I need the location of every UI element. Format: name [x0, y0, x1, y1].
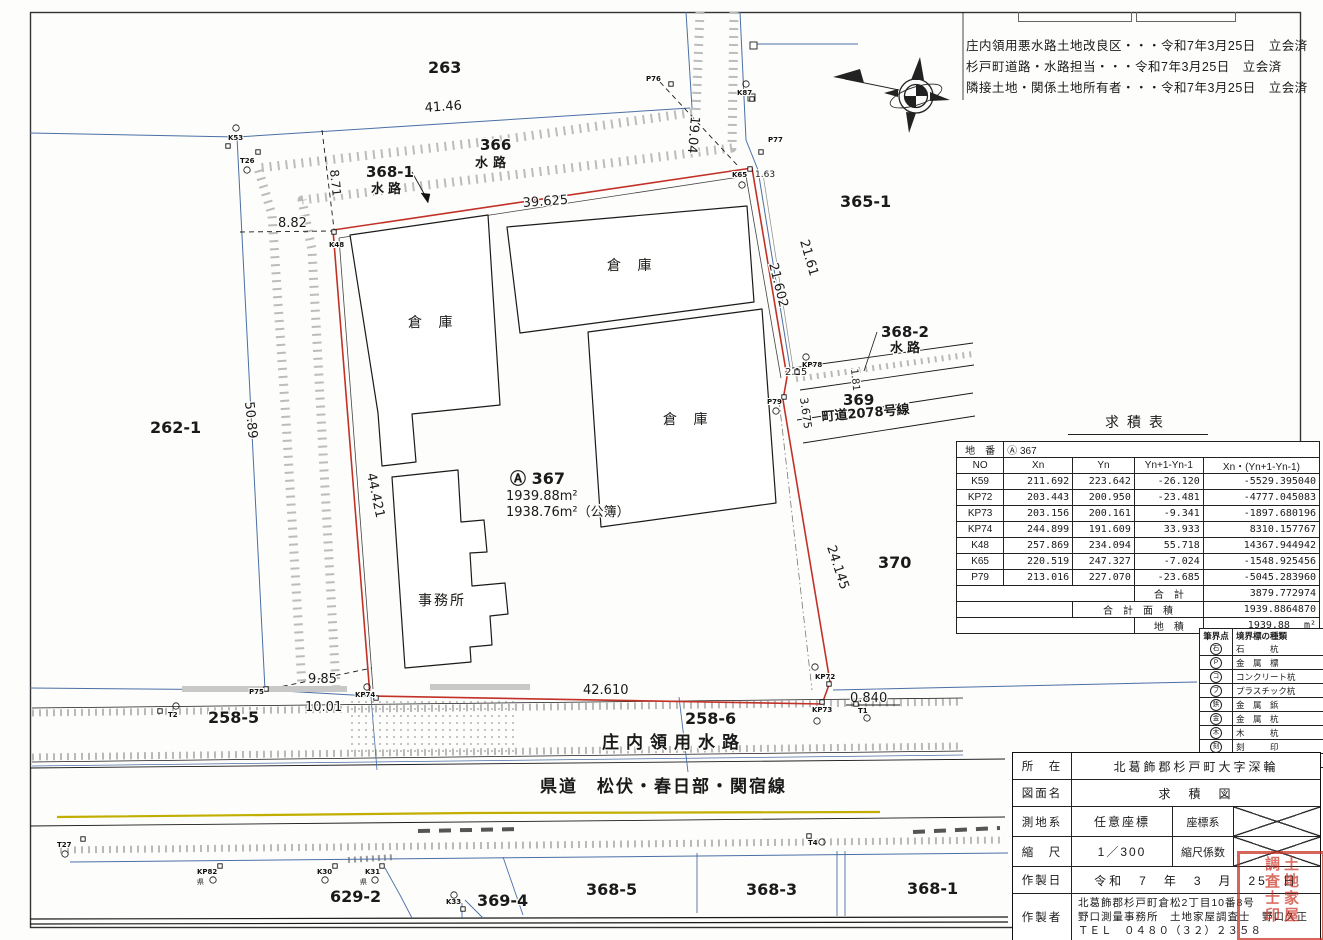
- survey-point-label: KP74: [355, 691, 375, 699]
- pavement-mark: [430, 684, 530, 690]
- point-type-symbol-icon: [372, 877, 378, 883]
- map-label: 3.675: [797, 397, 814, 430]
- survey-point-marker: [332, 230, 336, 234]
- column-header: Yn+1-Yn-1: [1134, 458, 1203, 474]
- legend-row: ププラスチック杭: [1200, 683, 1323, 697]
- survey-point-marker: [256, 150, 260, 154]
- marker-type-icon: 石: [1210, 643, 1222, 655]
- survey-point-label: KP73: [812, 706, 832, 714]
- dim-dashed: [240, 231, 333, 232]
- map-label: 8.71: [327, 169, 344, 197]
- boundary-blue: [70, 853, 1008, 862]
- coord-system-crossed-cell: [1234, 807, 1320, 836]
- coordinate-cell: 227.070: [1073, 570, 1135, 586]
- survey-point-label: K33: [446, 898, 461, 906]
- boundary-blue: [833, 682, 1197, 690]
- marker-type-icon: P: [1210, 657, 1222, 669]
- coordinate-cell: 223.642: [1073, 474, 1135, 490]
- map-label: 倉 庫: [408, 314, 458, 331]
- coordinate-cell: -1897.680196: [1203, 506, 1319, 522]
- coordinate-cell: -1548.925456: [1203, 554, 1319, 570]
- coordinate-cell: 244.899: [1004, 522, 1073, 538]
- drawing-name-value: 求 積 図: [1072, 780, 1320, 806]
- boundary-blue: [30, 108, 690, 137]
- survey-point-marker: [854, 702, 858, 706]
- geodetic-label: 測地系: [1013, 807, 1072, 836]
- map-label: 258-6: [685, 709, 736, 728]
- leader-arrowhead: [421, 193, 430, 203]
- point-id-cell: K59: [957, 474, 1004, 490]
- coordinate-cell: -5045.283960: [1203, 570, 1319, 586]
- map-label: 368-1: [907, 879, 958, 898]
- survey-point-marker: [807, 834, 811, 838]
- stamp-box-cut: [1136, 12, 1236, 22]
- map-label: 370: [878, 553, 911, 572]
- survey-point-marker: [669, 82, 673, 86]
- survey-point-label: K87: [737, 89, 752, 97]
- survey-point-marker: [820, 700, 824, 704]
- survey-point-label: K31: [365, 868, 380, 876]
- point-type-symbol-icon: [739, 182, 745, 188]
- point-id-cell: KP74: [957, 522, 1004, 538]
- point-type-symbol-icon: [244, 167, 250, 173]
- survey-point-marker: [380, 864, 384, 868]
- point-type-symbol-icon: [322, 877, 328, 883]
- maker-label: 作製者: [1013, 894, 1072, 940]
- survey-point-marker: [333, 864, 337, 868]
- point-id-cell: K48: [957, 538, 1004, 554]
- survey-point-label: T26: [240, 157, 255, 165]
- note-line: 庄内領用悪水路土地改良区・・・令和7年3月25日 立会済: [966, 36, 1318, 57]
- map-label: 8.82: [278, 216, 307, 231]
- prefecture-road-yellow: [57, 812, 880, 817]
- map-label: 369-4: [477, 891, 528, 910]
- road-hatch-band: [60, 840, 1005, 850]
- point-type-symbol-icon: [864, 715, 870, 721]
- area-table-title: 求積表: [1068, 412, 1208, 435]
- legend-header-sym: 筆界点: [1200, 629, 1233, 642]
- north-arrow-icon: [833, 57, 950, 133]
- marker-type-label: プラスチック杭: [1233, 685, 1323, 697]
- marker-type-label: 金 属 鋲: [1233, 699, 1323, 711]
- parcel-number-label: 地 番: [957, 442, 1004, 458]
- coordinate-cell: -23.685: [1134, 570, 1203, 586]
- map-label: 1938.76m²（公簿）: [506, 505, 630, 520]
- marker-type-label: 刻 印: [1233, 741, 1323, 753]
- survey-point-label: K30: [317, 868, 332, 876]
- point-id-cell: P79: [957, 570, 1004, 586]
- legend-row: 鋲金 属 鋲: [1200, 697, 1323, 711]
- map-label: 629-2: [330, 887, 381, 906]
- map-label: 368-5: [586, 880, 637, 899]
- seal-text: 調査士印: [1264, 856, 1279, 936]
- map-label: 262-1: [150, 418, 201, 437]
- map-label: 258-5: [208, 708, 259, 727]
- coordinate-cell: -9.341: [1134, 506, 1203, 522]
- survey-point-label: T4: [808, 839, 818, 847]
- coordinate-cell: 257.869: [1004, 538, 1073, 554]
- map-label: 368-3: [746, 880, 797, 899]
- stamp-box-cut: [1018, 12, 1132, 22]
- land-area-label: 地 積: [1134, 618, 1203, 634]
- coordinate-cell: 191.609: [1073, 522, 1135, 538]
- point-type-symbol-icon: [803, 354, 809, 360]
- building-office: [392, 470, 508, 668]
- marker-type-icon: 鋲: [1210, 699, 1222, 711]
- map-label: 庄内領用水路: [602, 732, 746, 753]
- column-header: Xn: [1004, 458, 1073, 474]
- marker-type-icon: 刻: [1210, 741, 1222, 753]
- coordinate-cell: 203.156: [1004, 506, 1073, 522]
- registrar-seal: 土地家屋 調査士印: [1237, 851, 1323, 940]
- map-label: 県道 松伏・春日部・関宿線: [540, 776, 787, 797]
- coordinate-cell: 55.718: [1134, 538, 1203, 554]
- survey-point-marker: [461, 907, 465, 911]
- survey-point-marker: [218, 864, 222, 868]
- column-header: NO: [957, 458, 1004, 474]
- point-type-symbol-icon: [773, 408, 779, 414]
- coordinate-cell: -23.481: [1134, 490, 1203, 506]
- survey-point-marker: [81, 837, 85, 841]
- spacer-cell: [957, 602, 1073, 618]
- witness-notes: 庄内領用悪水路土地改良区・・・令和7年3月25日 立会済 杉戸町道路・水路担当・…: [966, 36, 1318, 99]
- spacer-cell: [957, 618, 1135, 634]
- road-edge: [30, 817, 1005, 826]
- map-label: 366: [480, 136, 511, 154]
- total-value: 3879.772974: [1203, 586, 1319, 602]
- survey-drawing-sheet: 26341.46366水路368-1水路8.718.8239.62519.043…: [0, 0, 1323, 940]
- map-label: 42.610: [583, 683, 629, 698]
- point-owner-label: 県: [197, 878, 204, 886]
- boundary-marker-legend: 筆界点 境界標の種類 石石 杭P金 属 標ココンクリート杭ププラスチック杭鋲金 …: [1199, 628, 1323, 768]
- boundary-blue: [385, 868, 412, 918]
- date-label: 作製日: [1013, 867, 1072, 893]
- point-id-cell: KP73: [957, 506, 1004, 522]
- point-type-symbol-icon: [812, 664, 818, 670]
- coordinate-cell: 8310.157767: [1203, 522, 1319, 538]
- survey-point-marker: [748, 167, 752, 171]
- coordinate-cell: 33.933: [1134, 522, 1203, 538]
- coordinate-cell: 200.161: [1073, 506, 1135, 522]
- boundary-blue: [686, 12, 692, 108]
- map-label: 41.46: [424, 98, 462, 116]
- point-id-cell: KP72: [957, 490, 1004, 506]
- legend-row: 刻刻 印: [1200, 739, 1323, 753]
- sum-area-value: 1939.8864870: [1203, 602, 1319, 618]
- legend-row: ココンクリート杭: [1200, 669, 1323, 683]
- coordinate-cell: 211.692: [1004, 474, 1073, 490]
- map-label: 10.01: [305, 700, 342, 715]
- marker-type-label: 木 杭: [1233, 727, 1323, 739]
- map-label: 倉 庫: [607, 257, 657, 274]
- marker-type-label: 金 属 標: [1233, 657, 1323, 669]
- map-label: 365-1: [840, 192, 891, 211]
- crossing-stipple: [346, 698, 518, 752]
- marker-type-label: 金 属 杭: [1233, 713, 1323, 725]
- coordinate-cell: 213.016: [1004, 570, 1073, 586]
- map-label: 水路: [890, 340, 924, 356]
- sum-area-label: 合 計 面 積: [1073, 602, 1204, 618]
- point-type-symbol-icon: [173, 703, 179, 709]
- survey-point-marker: [158, 709, 162, 713]
- map-label: 39.625: [522, 193, 568, 211]
- survey-point-label: T2: [168, 711, 178, 719]
- survey-point-label: K48: [329, 241, 344, 249]
- marker-type-icon: 金: [1210, 713, 1222, 725]
- survey-point-label: P79: [767, 398, 782, 406]
- location-value: 北葛飾郡杉戸町大字深輪: [1072, 753, 1320, 779]
- survey-point-label: KP78: [802, 361, 822, 369]
- area-calculation-table: 求積表 地 番Ⓐ 367NOXnYnYn+1-Yn-1Xn・(Yn+1-Yn-1…: [956, 412, 1320, 634]
- legend-row: 金金 属 杭: [1200, 711, 1323, 725]
- parcel-number-value: Ⓐ 367: [1004, 442, 1320, 458]
- spacer-cell: [957, 586, 1135, 602]
- survey-point-marker: [759, 150, 763, 154]
- survey-point-label: KP72: [815, 673, 835, 681]
- map-label: 21.61: [796, 238, 821, 278]
- survey-point-marker: [782, 395, 786, 399]
- coord-system-label: 座標系: [1173, 807, 1234, 836]
- coordinate-cell: 203.443: [1004, 490, 1073, 506]
- survey-point-label: P76: [646, 75, 661, 83]
- drawing-name-label: 図面名: [1013, 780, 1072, 806]
- map-label: 21.602: [765, 261, 791, 309]
- note-line: 隣接土地・関係土地所有者・・・令和7年3月25日 立会済: [966, 78, 1318, 99]
- legend-row: 石石 杭: [1200, 642, 1323, 655]
- map-label: 368-1: [366, 163, 414, 181]
- map-label: 50.89: [241, 401, 260, 440]
- coordinate-cell: -5529.395040: [1203, 474, 1319, 490]
- survey-point-label: T27: [57, 841, 72, 849]
- map-label: 事務所: [418, 593, 466, 609]
- map-label: 1.63: [755, 170, 775, 180]
- coordinate-cell: -4777.045083: [1203, 490, 1319, 506]
- marker-type-label: 石 杭: [1233, 643, 1323, 655]
- map-label: 44.421: [363, 472, 387, 520]
- legend-row: 木木 杭: [1200, 725, 1323, 739]
- lane-dashes: [418, 829, 520, 831]
- point-type-symbol-icon: [210, 877, 216, 883]
- map-label: 9.85: [308, 672, 337, 687]
- survey-point-label: P75: [249, 688, 264, 696]
- coordinate-cell: 220.519: [1004, 554, 1073, 570]
- map-label: 水路: [371, 181, 405, 197]
- column-header: Yn: [1073, 458, 1135, 474]
- map-label: 24.145: [823, 544, 851, 592]
- coordinate-cell: -7.024: [1134, 554, 1203, 570]
- map-label: 倉 庫: [663, 411, 713, 428]
- frame-bottom-line: [30, 917, 1008, 919]
- column-header: Xn・(Yn+1-Yn-1): [1203, 458, 1319, 474]
- survey-point-label: K53: [228, 134, 243, 142]
- coordinate-cell: -26.120: [1134, 474, 1203, 490]
- lane-dashes: [913, 828, 1000, 832]
- geodetic-value: 任意座標: [1072, 807, 1173, 836]
- point-marker-square: [750, 42, 757, 49]
- map-label: 1939.88m²: [506, 489, 578, 504]
- map-label: 263: [428, 58, 461, 77]
- survey-point-label: K65: [732, 171, 747, 179]
- survey-point-marker: [264, 687, 268, 691]
- point-type-symbol-icon: [233, 125, 239, 131]
- location-label: 所 在: [1013, 753, 1072, 779]
- note-line: 杉戸町道路・水路担当・・・令和7年3月25日 立会済: [966, 57, 1318, 78]
- coordinate-cell: 247.327: [1073, 554, 1135, 570]
- point-owner-label: 県: [360, 878, 367, 886]
- scale-label: 縮 尺: [1013, 837, 1072, 866]
- map-label: 19.04: [684, 116, 702, 154]
- survey-point-marker: [795, 370, 799, 374]
- point-type-symbol-icon: [62, 851, 68, 857]
- map-label: Ⓐ 367: [510, 469, 565, 488]
- point-id-cell: K65: [957, 554, 1004, 570]
- legend-row: P金 属 標: [1200, 655, 1323, 669]
- legend-header-label: 境界標の種類: [1233, 630, 1323, 642]
- marker-type-icon: 木: [1210, 727, 1222, 739]
- coordinate-cell: 200.950: [1073, 490, 1135, 506]
- survey-point-marker: [827, 682, 831, 686]
- coordinate-cell: 234.094: [1073, 538, 1135, 554]
- marker-type-icon: プ: [1210, 685, 1222, 697]
- building-warehouse-left: [350, 215, 500, 466]
- survey-point-label: KP82: [197, 868, 217, 876]
- marker-type-label: コンクリート杭: [1233, 671, 1323, 683]
- survey-point-label: P77: [768, 136, 783, 144]
- map-label: 水路: [475, 155, 511, 171]
- frame-bottom-line: [30, 922, 1008, 924]
- point-type-symbol-icon: [814, 718, 820, 724]
- map-label: 1.81: [848, 368, 861, 391]
- ch368-2-hatch: [796, 354, 973, 379]
- survey-point-label: T1: [858, 707, 868, 715]
- survey-point-marker: [226, 144, 230, 148]
- total-label: 合 計: [1134, 586, 1203, 602]
- seal-text: 土地家屋: [1283, 856, 1298, 936]
- map-label: 368-2: [881, 323, 929, 341]
- coordinate-cell: 14367.944942: [1203, 538, 1319, 554]
- marker-type-icon: コ: [1210, 671, 1222, 683]
- scale-value: 1／300: [1072, 837, 1173, 866]
- leader-368-2: [864, 332, 877, 371]
- scale-factor-label: 縮尺係数: [1173, 837, 1234, 866]
- survey-point-marker: [750, 97, 754, 101]
